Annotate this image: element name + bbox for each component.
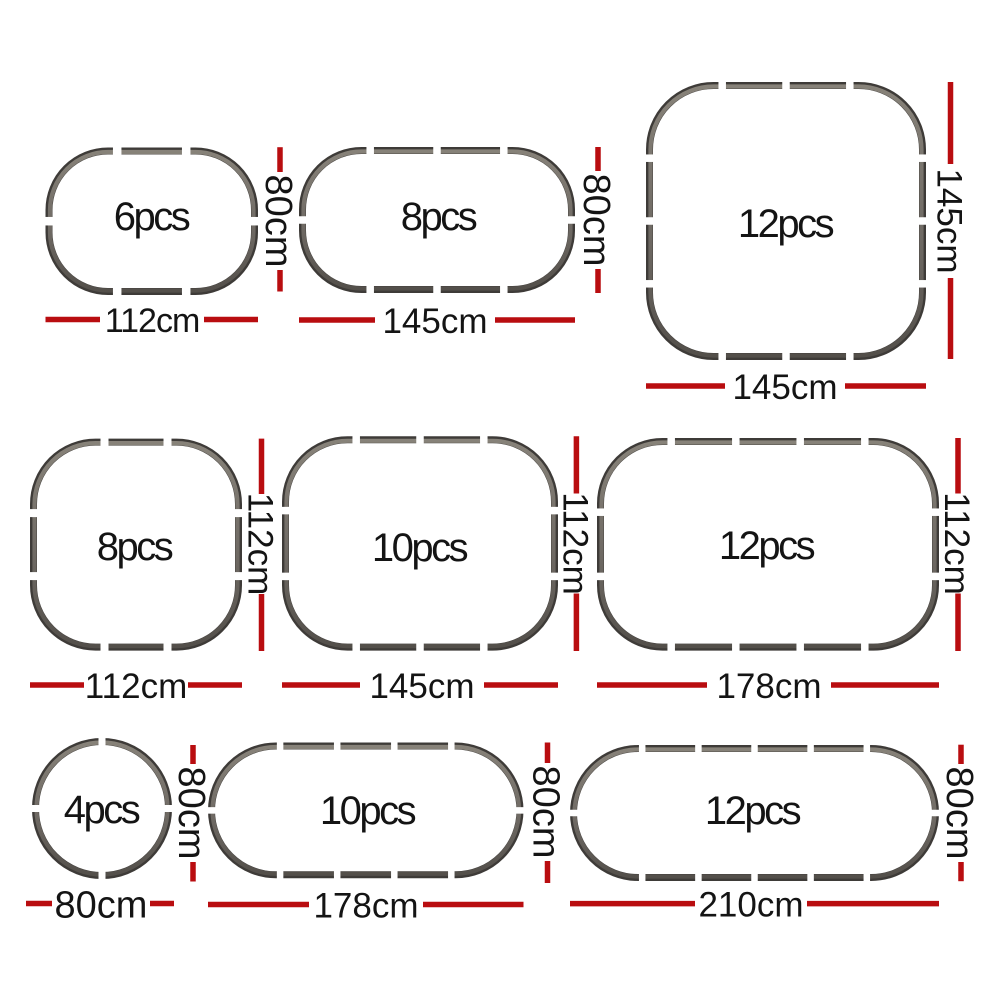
svg-text:80cm: 80cm [525,766,567,859]
svg-text:80cm: 80cm [257,175,299,268]
svg-text:80cm: 80cm [575,174,617,267]
svg-text:145cm: 145cm [930,168,969,273]
svg-text:80cm: 80cm [170,767,212,860]
svg-text:112cm: 112cm [937,492,976,594]
svg-text:145cm: 145cm [369,667,474,706]
svg-text:210cm: 210cm [698,885,803,924]
svg-text:12pcs: 12pcs [738,202,834,246]
svg-text:80cm: 80cm [938,767,980,860]
svg-text:112cm: 112cm [556,492,595,594]
svg-text:80cm: 80cm [55,884,148,926]
svg-text:6pcs: 6pcs [114,195,190,239]
svg-text:145cm: 145cm [732,368,837,407]
svg-text:178cm: 178cm [313,886,418,925]
svg-text:10pcs: 10pcs [320,789,416,833]
svg-text:12pcs: 12pcs [719,524,815,568]
svg-text:10pcs: 10pcs [372,526,468,570]
svg-text:4pcs: 4pcs [64,788,140,832]
svg-text:112cm: 112cm [85,667,187,706]
svg-text:112cm: 112cm [241,493,280,595]
svg-text:178cm: 178cm [716,667,821,706]
svg-text:8pcs: 8pcs [97,525,173,569]
svg-text:145cm: 145cm [382,302,487,341]
svg-text:12pcs: 12pcs [705,789,801,833]
svg-text:8pcs: 8pcs [401,195,477,239]
svg-text:112cm: 112cm [105,302,200,340]
